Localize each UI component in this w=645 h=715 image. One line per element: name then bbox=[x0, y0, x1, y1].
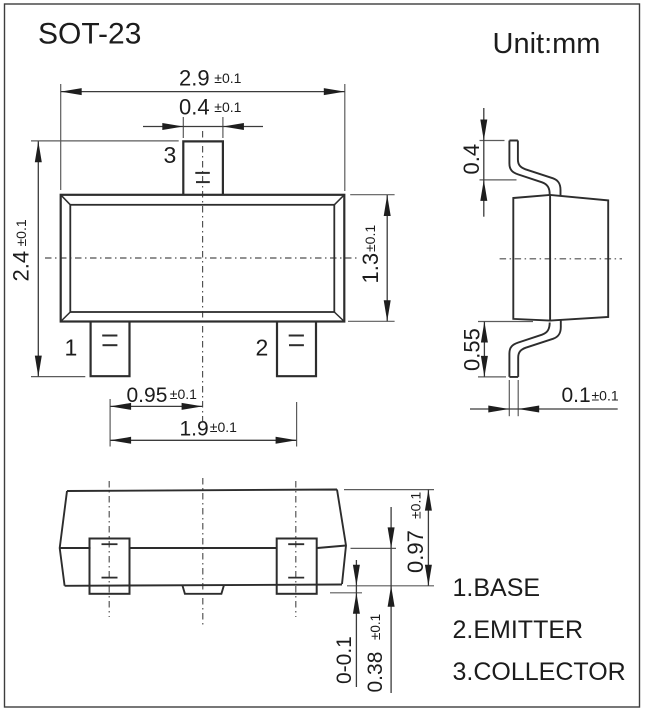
svg-text:±0.1: ±0.1 bbox=[214, 99, 241, 115]
svg-text:2.9: 2.9 bbox=[179, 65, 210, 90]
svg-text:±0.1: ±0.1 bbox=[362, 225, 378, 252]
svg-text:2.EMITTER: 2.EMITTER bbox=[453, 616, 584, 644]
svg-text:±0.1: ±0.1 bbox=[368, 614, 383, 640]
svg-text:3: 3 bbox=[164, 142, 177, 168]
svg-text:±0.1: ±0.1 bbox=[592, 388, 619, 404]
svg-text:0.97: 0.97 bbox=[403, 530, 428, 573]
svg-text:1.3: 1.3 bbox=[358, 253, 383, 284]
svg-text:Unit:mm: Unit:mm bbox=[493, 28, 601, 60]
svg-text:±0.1: ±0.1 bbox=[214, 70, 241, 86]
svg-text:0.38: 0.38 bbox=[364, 652, 387, 693]
svg-text:0.1: 0.1 bbox=[562, 384, 591, 407]
svg-text:2.4: 2.4 bbox=[9, 251, 34, 282]
svg-text:±0.1: ±0.1 bbox=[170, 386, 197, 402]
svg-text:±0.1: ±0.1 bbox=[210, 419, 237, 435]
svg-text:2: 2 bbox=[256, 335, 269, 361]
svg-text:±0.1: ±0.1 bbox=[13, 219, 29, 246]
svg-text:±0.1: ±0.1 bbox=[408, 492, 424, 519]
svg-text:0.4: 0.4 bbox=[179, 95, 210, 120]
svg-text:SOT-23: SOT-23 bbox=[38, 18, 141, 51]
svg-text:1.9: 1.9 bbox=[180, 417, 209, 440]
svg-text:0.55: 0.55 bbox=[460, 328, 485, 371]
svg-text:1.BASE: 1.BASE bbox=[453, 574, 541, 602]
svg-text:0.4: 0.4 bbox=[459, 144, 484, 175]
svg-text:3.COLLECTOR: 3.COLLECTOR bbox=[453, 658, 626, 686]
svg-text:1: 1 bbox=[65, 335, 78, 361]
svg-text:0-0.1: 0-0.1 bbox=[333, 636, 356, 684]
svg-text:0.95: 0.95 bbox=[127, 384, 168, 407]
